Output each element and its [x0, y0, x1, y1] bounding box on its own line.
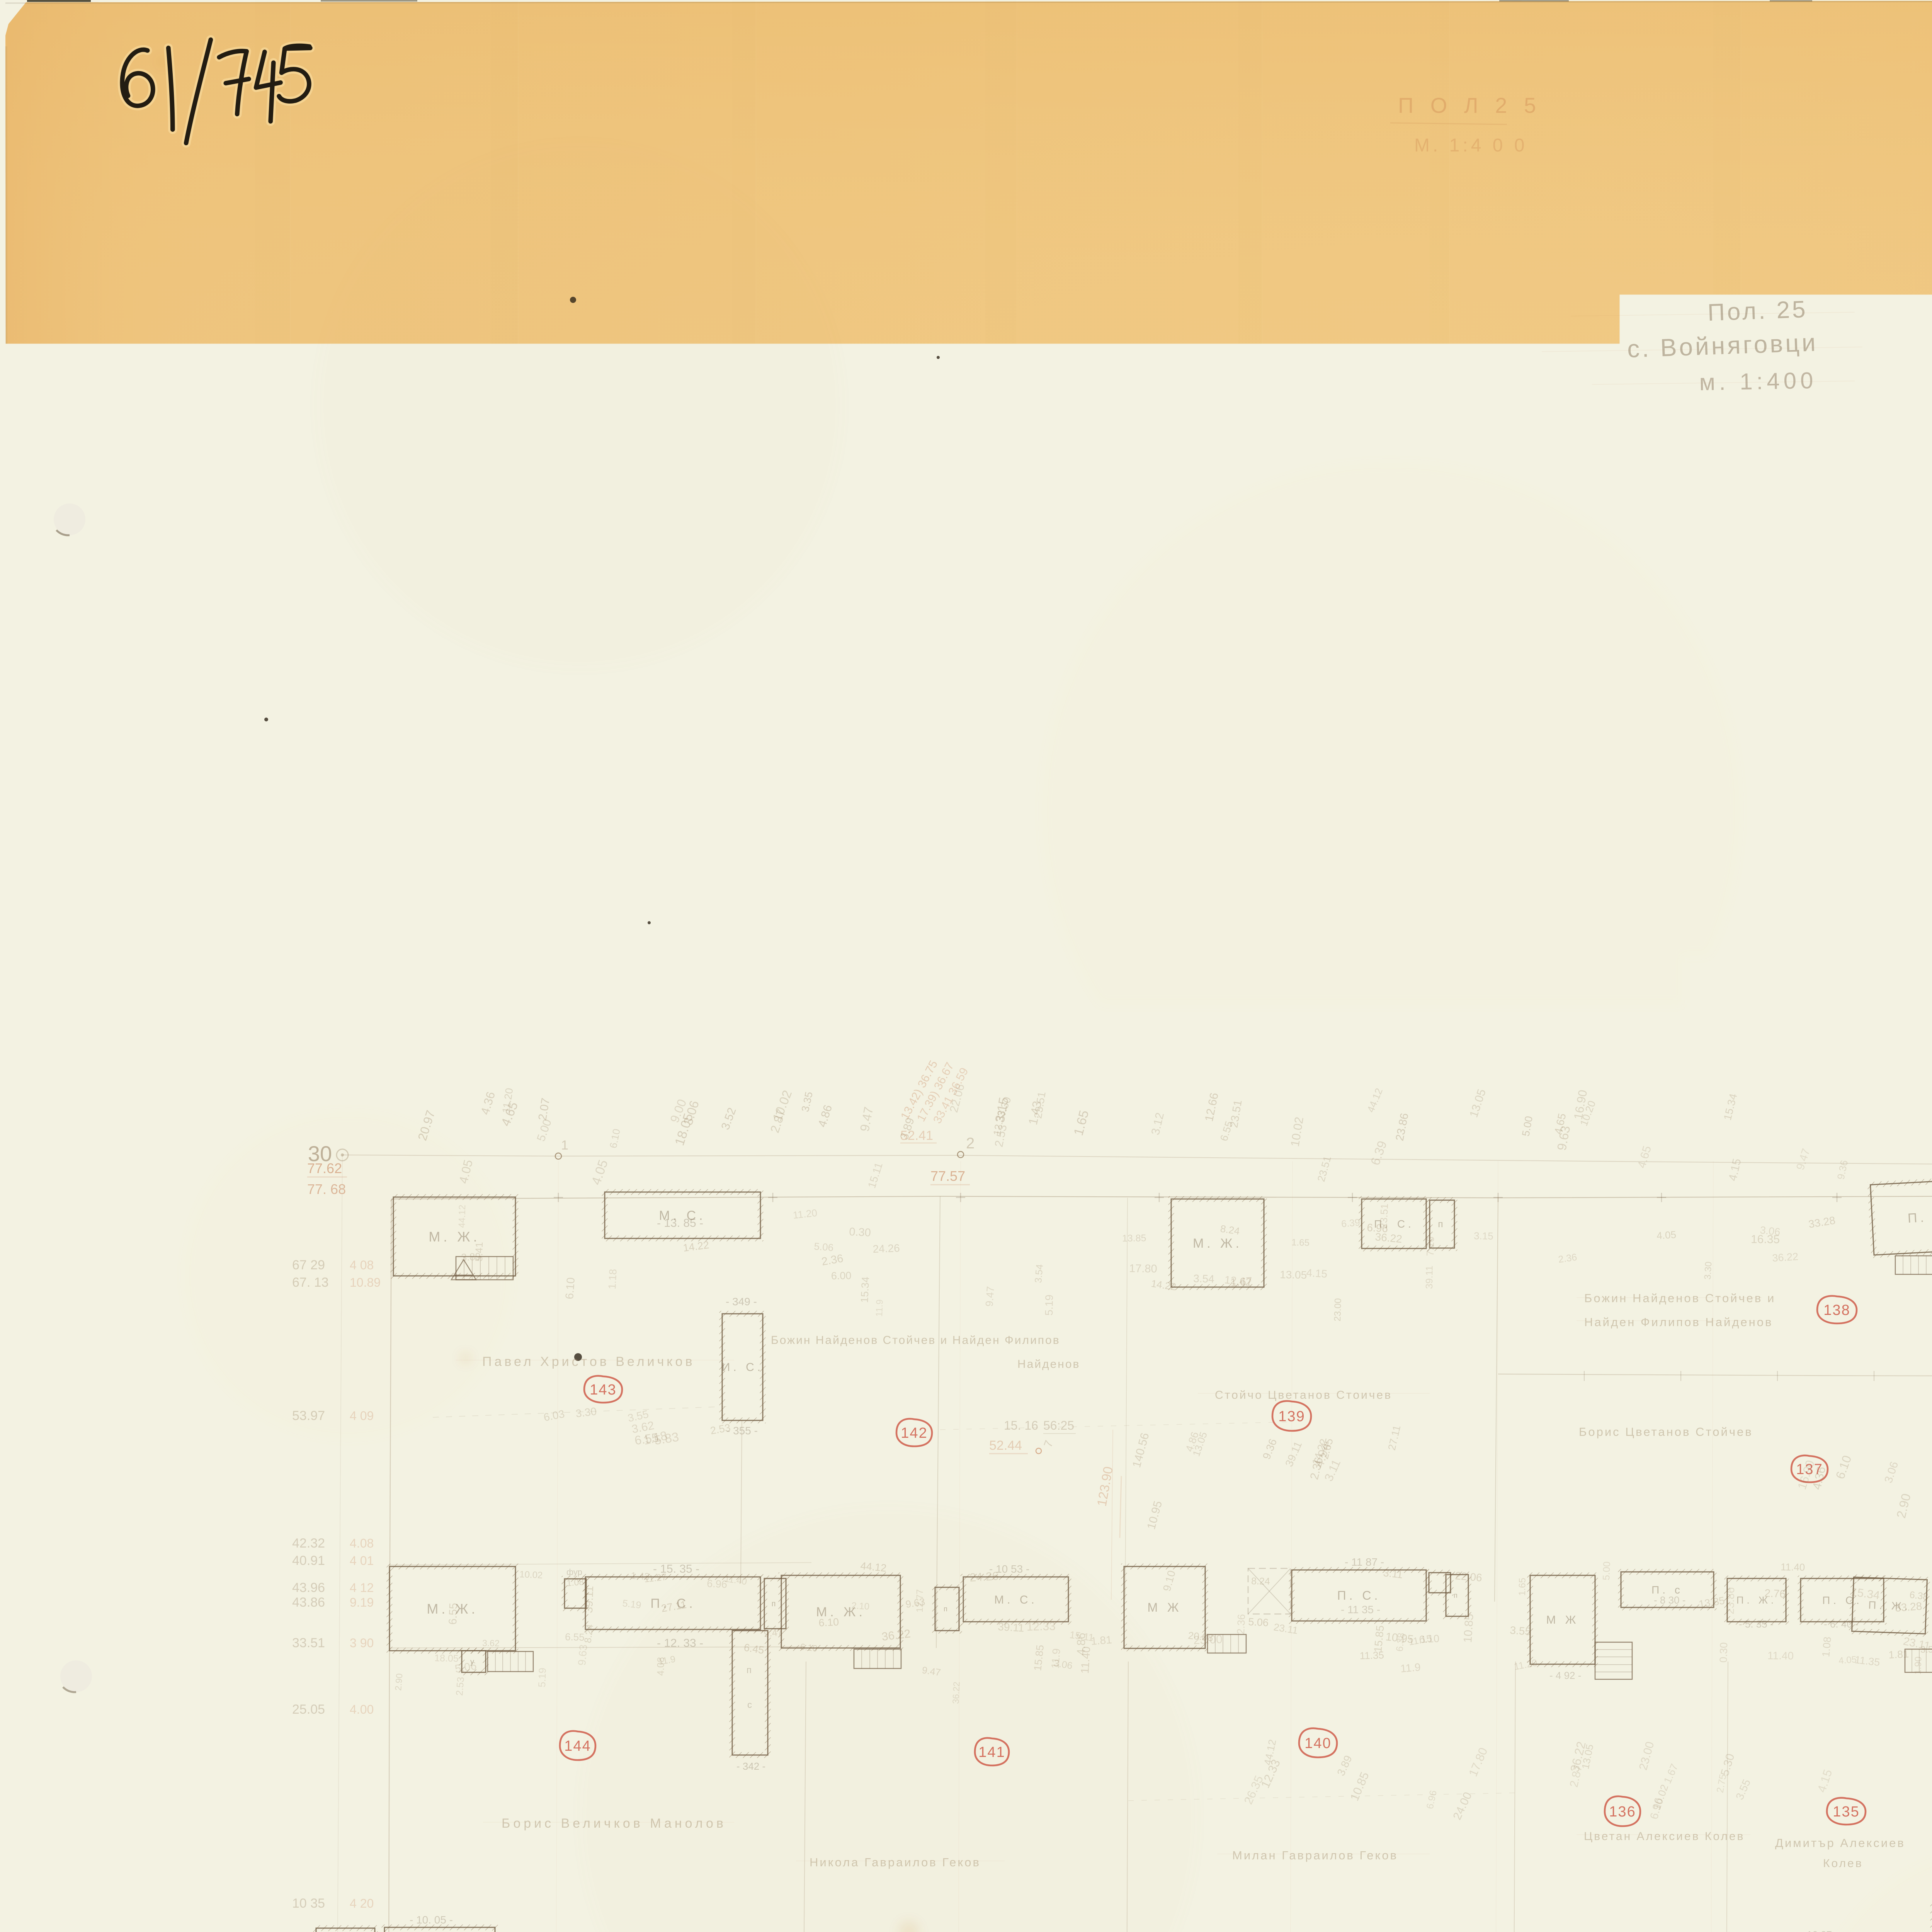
- svg-text:4.08: 4.08: [655, 1657, 666, 1676]
- svg-text:18.05: 18.05: [434, 1653, 459, 1664]
- svg-text:25.05: 25.05: [292, 1702, 325, 1717]
- svg-text:- 349 -: - 349 -: [726, 1296, 757, 1308]
- svg-text:1.67: 1.67: [1230, 1275, 1253, 1289]
- svg-text:Цветан Алексиев Колев: Цветан Алексиев Колев: [1584, 1830, 1745, 1843]
- svg-text:М. С.: М. С.: [994, 1594, 1037, 1606]
- svg-text:5.19: 5.19: [536, 1668, 548, 1688]
- svg-text:- 5. 35 -: - 5. 35 -: [1739, 1618, 1774, 1630]
- svg-text:10.02: 10.02: [519, 1569, 543, 1581]
- svg-text:10.89: 10.89: [350, 1276, 381, 1289]
- svg-text:3.30: 3.30: [575, 1405, 597, 1420]
- svg-text:0.30: 0.30: [849, 1226, 871, 1239]
- svg-text:23.00: 23.00: [1332, 1298, 1344, 1321]
- svg-text:- 11 35 -: - 11 35 -: [1341, 1604, 1380, 1616]
- svg-text:24.26: 24.26: [969, 1570, 999, 1584]
- svg-text:2.76: 2.76: [1764, 1587, 1786, 1600]
- svg-text:144: 144: [564, 1738, 591, 1754]
- svg-text:56:25: 56:25: [1043, 1418, 1074, 1432]
- svg-text:77.57: 77.57: [930, 1168, 965, 1184]
- svg-text:4 12: 4 12: [350, 1581, 374, 1595]
- svg-text:135: 135: [1833, 1804, 1859, 1820]
- svg-text:п: п: [1454, 1592, 1461, 1599]
- svg-text:1.08: 1.08: [566, 1577, 584, 1588]
- svg-text:12.77: 12.77: [915, 1589, 925, 1612]
- svg-text:6.10: 6.10: [1419, 1633, 1440, 1645]
- svg-text:12.33: 12.33: [1026, 1620, 1056, 1633]
- svg-text:4.05: 4.05: [1838, 1654, 1857, 1666]
- svg-text:Божин Найденов Стойчев и Н: Божин Найденов Стойчев и Найден Филипов: [771, 1334, 1060, 1347]
- svg-text:6.55: 6.55: [565, 1631, 585, 1643]
- svg-text:44.12: 44.12: [457, 1205, 468, 1228]
- svg-text:- 10.27 -: - 10.27 -: [1801, 1929, 1838, 1932]
- svg-text:1.90: 1.90: [1913, 1656, 1923, 1675]
- svg-text:15.34: 15.34: [859, 1276, 871, 1303]
- svg-text:4 20: 4 20: [350, 1896, 374, 1910]
- svg-text:- 4 92 -: - 4 92 -: [1549, 1670, 1581, 1681]
- svg-text:1.65: 1.65: [1517, 1578, 1528, 1596]
- svg-text:2.36: 2.36: [1235, 1614, 1247, 1635]
- svg-text:П. С.: П. С.: [1337, 1588, 1381, 1602]
- svg-text:6.10: 6.10: [799, 1641, 818, 1653]
- svg-text:6.55: 6.55: [447, 1603, 460, 1625]
- svg-text:39.11: 39.11: [1424, 1265, 1435, 1289]
- svg-text:67 29: 67 29: [292, 1258, 325, 1272]
- svg-text:136: 136: [1609, 1804, 1636, 1820]
- svg-text:Димитър Алексиев: Димитър Алексиев: [1775, 1836, 1905, 1850]
- svg-text:3.30: 3.30: [1702, 1261, 1714, 1280]
- svg-text:М. Ж.: М. Ж.: [429, 1229, 480, 1245]
- svg-text:9.63: 9.63: [576, 1644, 589, 1666]
- svg-text:8.24: 8.24: [1251, 1576, 1270, 1587]
- svg-text:11.9: 11.9: [1400, 1661, 1421, 1675]
- svg-text:5.19: 5.19: [622, 1598, 642, 1611]
- svg-text:67. 13: 67. 13: [292, 1275, 329, 1290]
- svg-text:33.51: 33.51: [292, 1636, 325, 1650]
- svg-text:36.22: 36.22: [951, 1682, 961, 1704]
- svg-text:4 09: 4 09: [350, 1409, 374, 1423]
- svg-text:77.62: 77.62: [307, 1160, 342, 1176]
- svg-text:Стойчо Цветанов Стоичев: Стойчо Цветанов Стоичев: [1215, 1389, 1392, 1401]
- svg-text:Павел Христов Величков: Павел Христов Величков: [482, 1354, 695, 1369]
- svg-text:5.00: 5.00: [1601, 1561, 1612, 1581]
- svg-text:10.85: 10.85: [1461, 1613, 1476, 1643]
- svg-text:52.44: 52.44: [989, 1438, 1022, 1453]
- svg-text:11.40: 11.40: [1079, 1646, 1093, 1674]
- svg-text:6.00: 6.00: [831, 1270, 852, 1282]
- svg-text:7.16: 7.16: [1424, 1236, 1436, 1256]
- svg-text:фур: фур: [566, 1567, 582, 1577]
- svg-text:13.85: 13.85: [1122, 1233, 1146, 1244]
- svg-text:5.19: 5.19: [1043, 1294, 1055, 1316]
- svg-text:1.81: 1.81: [1888, 1648, 1909, 1661]
- svg-text:142: 142: [901, 1425, 927, 1441]
- svg-text:17.80: 17.80: [1129, 1262, 1157, 1275]
- svg-text:40.91: 40.91: [292, 1553, 325, 1568]
- svg-text:2.90: 2.90: [393, 1673, 404, 1691]
- svg-text:Никола Гавраилов Геков: Никола Гавраилов Геков: [810, 1855, 981, 1869]
- svg-text:1.65: 1.65: [1291, 1237, 1310, 1248]
- svg-text:2.53: 2.53: [454, 1677, 466, 1696]
- svg-text:11.9: 11.9: [1049, 1648, 1063, 1669]
- svg-text:Пол. 25: Пол. 25: [1707, 296, 1808, 326]
- svg-text:9.47: 9.47: [763, 1627, 783, 1639]
- svg-text:- 8 30 -: - 8 30 -: [1654, 1594, 1685, 1606]
- svg-text:4.15: 4.15: [1306, 1267, 1328, 1280]
- svg-text:1: 1: [561, 1138, 568, 1153]
- svg-text:15. 16: 15. 16: [1004, 1418, 1038, 1432]
- svg-text:2: 2: [966, 1135, 975, 1152]
- svg-text:22.06: 22.06: [1454, 1570, 1482, 1584]
- svg-text:п: п: [1438, 1219, 1446, 1230]
- svg-text:М. 1:4 0 0: М. 1:4 0 0: [1414, 135, 1527, 156]
- svg-text:- 342 -: - 342 -: [736, 1760, 765, 1772]
- svg-text:3.06: 3.06: [1759, 1224, 1781, 1238]
- svg-text:3.15: 3.15: [1474, 1230, 1493, 1242]
- svg-text:м. 1:400: м. 1:400: [1699, 367, 1817, 395]
- svg-text:Борис Цветанов Стойчев: Борис Цветанов Стойчев: [1579, 1425, 1753, 1439]
- svg-text:6.10: 6.10: [563, 1277, 577, 1300]
- svg-text:36.22: 36.22: [1374, 1231, 1403, 1245]
- svg-text:11.40: 11.40: [1767, 1650, 1794, 1662]
- svg-text:43.96: 43.96: [292, 1580, 325, 1595]
- svg-text:Колев: Колев: [1823, 1857, 1863, 1870]
- svg-text:13.05: 13.05: [1280, 1269, 1307, 1281]
- svg-text:140: 140: [1304, 1735, 1331, 1752]
- svg-text:М Ж: М Ж: [1546, 1614, 1579, 1626]
- svg-text:23.51: 23.51: [1378, 1203, 1390, 1229]
- svg-text:24.26: 24.26: [872, 1242, 900, 1255]
- svg-text:44.12: 44.12: [860, 1560, 887, 1574]
- svg-text:П О Л 2 5: П О Л 2 5: [1398, 93, 1541, 117]
- svg-text:138: 138: [1823, 1302, 1850, 1318]
- svg-text:6.10: 6.10: [818, 1616, 839, 1629]
- svg-text:Борис Величков Манолов: Борис Величков Манолов: [502, 1816, 726, 1831]
- svg-text:43.86: 43.86: [292, 1595, 325, 1610]
- svg-text:39.11: 39.11: [583, 1586, 596, 1613]
- svg-text:5.06: 5.06: [1248, 1616, 1269, 1629]
- svg-text:4.00: 4.00: [350, 1702, 374, 1716]
- svg-text:11.40: 11.40: [1781, 1561, 1805, 1573]
- svg-text:42.32: 42.32: [292, 1536, 325, 1551]
- svg-text:- 12. 33 -: - 12. 33 -: [657, 1637, 703, 1650]
- svg-text:- 355 -: - 355 -: [726, 1425, 758, 1437]
- svg-text:9.19: 9.19: [350, 1595, 374, 1609]
- svg-text:Милан Гавраилов Геков: Милан Гавраилов Геков: [1232, 1849, 1398, 1862]
- svg-text:5.41: 5.41: [473, 1242, 485, 1262]
- svg-text:11.9: 11.9: [874, 1299, 885, 1317]
- svg-text:4 01: 4 01: [350, 1554, 374, 1568]
- svg-text:с: с: [747, 1700, 752, 1710]
- svg-text:- 4 77 -: - 4 77 -: [1260, 1930, 1292, 1932]
- svg-text:4.08: 4.08: [350, 1536, 374, 1550]
- svg-text:Божин Найденов Стойчев и: Божин Найденов Стойчев и: [1584, 1291, 1776, 1305]
- svg-text:п: п: [747, 1665, 752, 1675]
- svg-text:1.18: 1.18: [606, 1269, 619, 1289]
- svg-text:П. Ж.: П. Ж.: [1907, 1209, 1932, 1226]
- svg-text:143: 143: [590, 1382, 616, 1398]
- svg-text:15.85: 15.85: [1372, 1625, 1386, 1653]
- svg-text:М. Ж.: М. Ж.: [1193, 1236, 1242, 1251]
- svg-text:141: 141: [978, 1744, 1005, 1760]
- svg-text:И. С.: И. С.: [722, 1361, 764, 1374]
- svg-text:1.08: 1.08: [1820, 1636, 1833, 1658]
- svg-text:39.11: 39.11: [998, 1621, 1025, 1634]
- svg-text:п: п: [772, 1600, 779, 1608]
- svg-text:77. 68: 77. 68: [307, 1181, 346, 1197]
- svg-text:Найден Филипов Найденов: Найден Филипов Найденов: [1584, 1315, 1773, 1329]
- svg-text:9.47: 9.47: [983, 1286, 997, 1307]
- svg-text:3.54: 3.54: [1033, 1264, 1045, 1284]
- svg-text:2.10: 2.10: [851, 1600, 870, 1612]
- svg-text:3.11: 3.11: [1383, 1567, 1403, 1580]
- svg-text:53.97: 53.97: [292, 1408, 325, 1423]
- svg-text:36.22: 36.22: [1772, 1251, 1798, 1264]
- svg-text:п: п: [944, 1605, 951, 1613]
- svg-text:6.39: 6.39: [1341, 1217, 1361, 1230]
- svg-text:4 08: 4 08: [350, 1258, 374, 1272]
- svg-text:3.54: 3.54: [1193, 1272, 1214, 1285]
- svg-text:- 13. 85 -: - 13. 85 -: [657, 1217, 703, 1230]
- svg-text:33.28: 33.28: [1895, 1600, 1922, 1614]
- svg-text:3.62: 3.62: [482, 1638, 500, 1648]
- svg-text:Найденов: Найденов: [1017, 1358, 1080, 1371]
- svg-text:23.86: 23.86: [1724, 1587, 1736, 1614]
- svg-text:6.38: 6.38: [1394, 1632, 1407, 1652]
- svg-text:5.06: 5.06: [814, 1240, 834, 1253]
- svg-text:10 35: 10 35: [292, 1896, 325, 1911]
- svg-text:4.05: 4.05: [1656, 1229, 1676, 1242]
- svg-text:3 90: 3 90: [350, 1636, 374, 1650]
- svg-text:- 4.35 -: - 4.35 -: [1712, 1930, 1743, 1932]
- svg-text:М Ж: М Ж: [1147, 1600, 1182, 1614]
- svg-text:0.30: 0.30: [1718, 1642, 1730, 1663]
- svg-text:1.81: 1.81: [1090, 1634, 1112, 1647]
- svg-text:3.55: 3.55: [1510, 1624, 1532, 1638]
- svg-text:- 11 87 -: - 11 87 -: [1345, 1556, 1384, 1568]
- svg-text:- 10. 05 -: - 10. 05 -: [410, 1914, 453, 1926]
